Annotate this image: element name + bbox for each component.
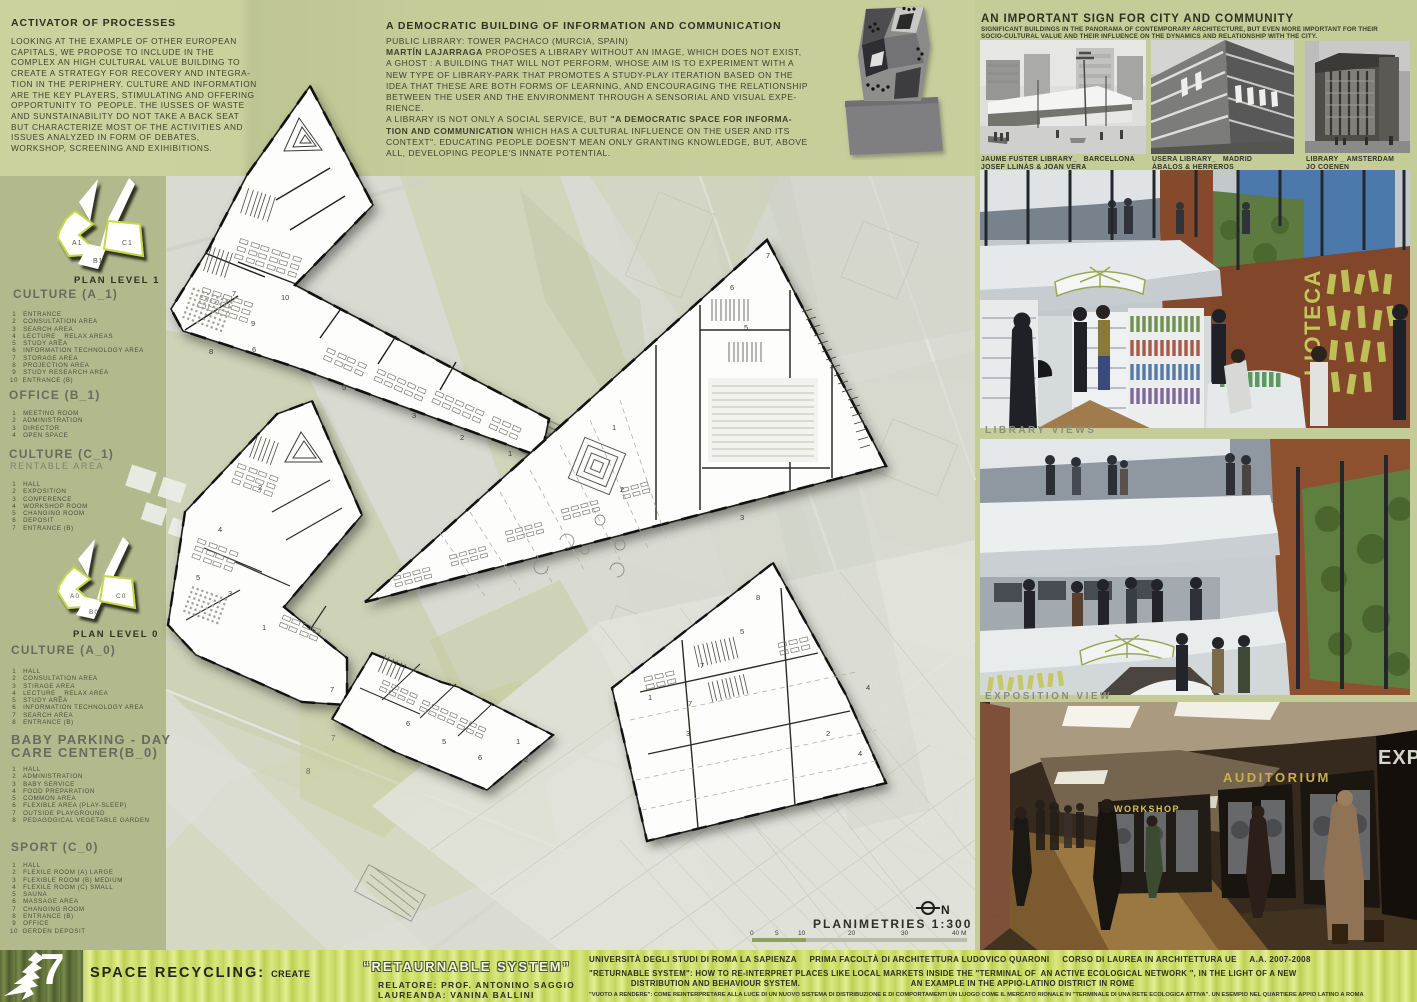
svg-text:6: 6 [406,719,410,728]
svg-text:A0: A0 [70,593,80,600]
svg-text:6: 6 [730,283,734,292]
svg-text:1: 1 [648,693,652,702]
svg-text:5: 5 [342,383,346,392]
svg-text:6: 6 [478,753,482,762]
svg-text:40 M: 40 M [952,930,966,937]
svg-text:0: 0 [750,930,754,937]
svg-text:1: 1 [262,623,266,632]
svg-text:WORKSHOP: WORKSHOP [1114,804,1180,814]
svg-text:7: 7 [40,950,64,994]
svg-text:3: 3 [740,513,744,522]
svg-text:3: 3 [686,729,690,738]
svg-text:8: 8 [209,347,213,356]
svg-text:2: 2 [826,729,830,738]
svg-text:5: 5 [442,737,446,746]
svg-text:B1: B1 [93,258,104,265]
svg-text:9: 9 [251,319,255,328]
svg-text:7: 7 [766,251,770,260]
svg-text:7: 7 [700,661,704,670]
svg-text:10: 10 [281,293,289,302]
svg-text:3: 3 [228,589,232,598]
svg-text:8: 8 [756,593,760,602]
svg-text:7: 7 [232,289,236,298]
svg-text:5: 5 [775,930,779,937]
svg-text:EXPOSI: EXPOSI [1378,747,1417,769]
svg-text:5: 5 [740,627,744,636]
svg-text:AUDITORIUM: AUDITORIUM [1223,770,1331,785]
svg-text:1: 1 [508,449,512,458]
svg-text:2: 2 [258,483,262,492]
svg-text:C1: C1 [122,240,133,247]
svg-text:4: 4 [218,525,222,534]
svg-text:20: 20 [848,930,856,937]
svg-text:A1: A1 [72,240,83,247]
svg-text:PLANIMETRIES 1:300: PLANIMETRIES 1:300 [813,917,972,931]
svg-text:7: 7 [688,699,692,708]
svg-text:2: 2 [620,485,624,494]
svg-text:30: 30 [901,930,909,937]
svg-text:N: N [941,903,950,917]
svg-text:B0: B0 [89,609,99,616]
svg-text:5: 5 [196,573,200,582]
svg-text:7: 7 [331,734,336,743]
svg-text:5: 5 [744,323,748,332]
svg-text:C0: C0 [116,593,126,600]
svg-text:1: 1 [612,423,616,432]
svg-text:3: 3 [412,411,416,420]
svg-text:2: 2 [460,433,464,442]
svg-text:6: 6 [252,345,256,354]
svg-text:4: 4 [866,683,870,692]
svg-text:4: 4 [858,749,862,758]
svg-text:2: 2 [524,755,528,764]
svg-text:10: 10 [798,930,806,937]
svg-text:7: 7 [330,685,334,694]
svg-text:1: 1 [516,737,520,746]
svg-text:8: 8 [306,767,311,776]
